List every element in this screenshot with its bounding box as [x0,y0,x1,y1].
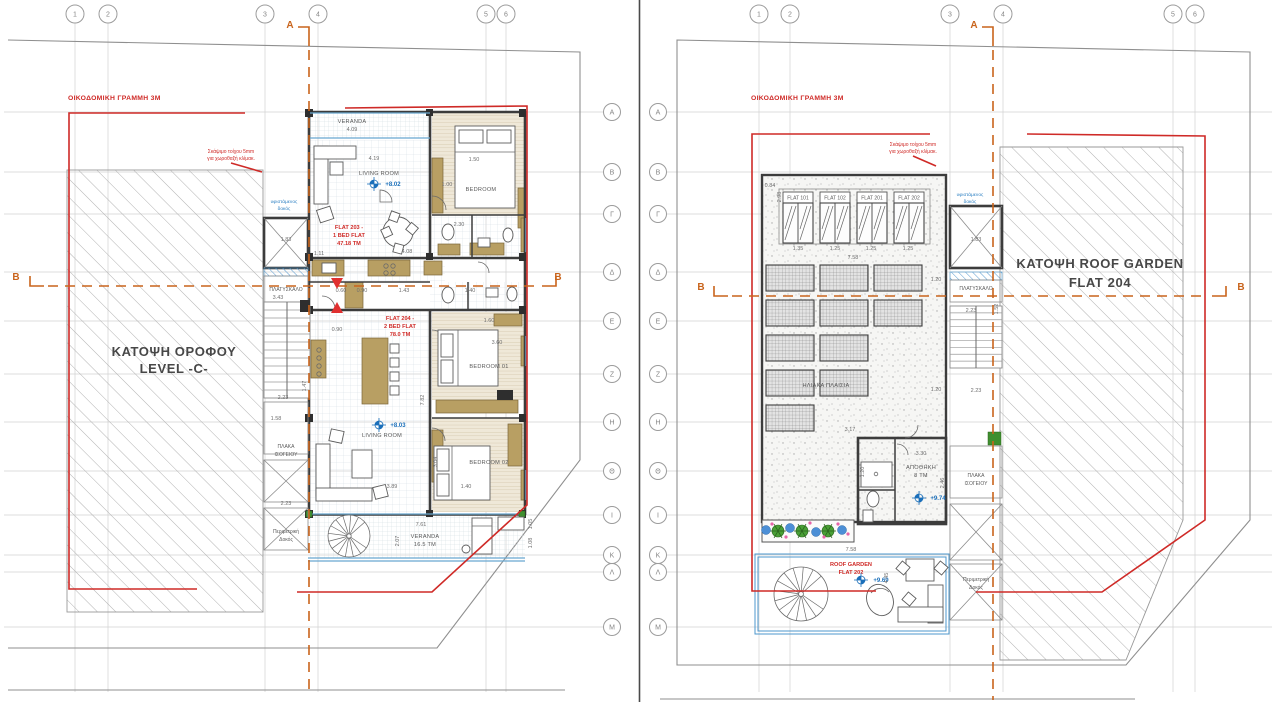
dimension-label: 0.60 [336,288,347,294]
dimension-label: 0.90 [357,288,368,294]
dimension-label: 1.83 [971,237,982,243]
flat-label: FLAT 204 - [386,316,414,322]
neighbour-building-hatch [67,170,263,612]
room-label: BEDROOM 02 [469,460,508,466]
grid-bubble-label: B [610,170,615,177]
dimension-label: 0.90 [332,327,343,333]
section-b-label-left-w: B [12,272,19,283]
grid-bubble-label: E [610,319,615,326]
dimension-label: 3.60 [492,340,503,346]
dimension-label: 1.25 [866,246,877,252]
dimension-label: 4.45 [884,573,890,584]
right-plan-subtitle: FLAT 204 [1069,275,1132,290]
beam-note: υφιστάμενος [271,198,298,205]
grid-bubble-label: Z [656,372,661,379]
solar-panel [874,265,922,291]
dimension-label: 3.30 [916,451,927,457]
core-label: ΠΛΑΚΑ [968,473,986,479]
dimension-label: 7.82 [420,395,426,406]
flat-label: ROOF GARDEN [830,562,872,568]
grid-bubble-label: Θ [609,469,615,476]
dimension-label: 1.00 [442,182,453,188]
roof-slab: FLAT 101FLAT 102FLAT 201FLAT 202 [762,175,946,524]
solar-panel [766,265,814,291]
level-label: +8.02 [385,182,401,188]
grid-bubble-label: H [609,420,614,427]
dimension-label: 3.89 [387,484,398,490]
grid-bubble-label: Λ [656,570,661,577]
skylight-label: FLAT 102 [824,196,846,202]
grid-bubble-label: M [655,625,661,632]
flat-label: 78.0 ΤΜ [390,332,411,338]
grid-bubble-label: 4 [1001,12,1005,19]
dimension-label: 2.23 [281,501,292,507]
grid-bubble-label: Δ [610,270,615,277]
grid-bubble-label: I [657,513,659,520]
solar-panel [766,405,814,431]
dimension-label: 0.84 [765,183,776,189]
room-label: 8 ΤΜ [914,473,928,479]
solar-panel [766,335,814,361]
grid-bubble-label: K [610,553,615,560]
dimension-label: 2.23 [966,308,977,314]
dimension-label: 1.25 [830,246,841,252]
room-label: ΑΠΟΘΗΚΗ [906,465,936,471]
flat-label: FLAT 203 - [335,225,363,231]
solar-panel [820,265,868,291]
dimension-label: 1.20 [860,467,866,478]
beam-note: δοκός [278,205,291,212]
dimension-label: 1.58 [271,416,282,422]
dimension-label: 2.07 [395,536,401,547]
grid-bubble-label: 4 [316,12,320,19]
room-label: BEDROOM 01 [469,364,508,370]
dimension-label: 7.58 [848,255,859,261]
grid-bubble-label: 6 [504,12,508,19]
spiral-stair [328,515,370,557]
excavation-note-right-1: Σκάψιμο τοίχου 5mm [890,141,936,148]
grid-bubble-label: A [610,110,615,117]
grid-bubble-label: M [609,625,615,632]
dimension-label: 1.83 [281,237,292,243]
section-arrow-down [331,302,343,313]
right-plan-roof-garden: FLAT 101FLAT 102FLAT 201FLAT 202 [660,27,1250,700]
solar-panel [820,335,868,361]
core-label: ΙΣΟΓΕΙΟΥ [965,481,989,487]
flat-label: 2 BED FLAT [384,324,416,330]
dimension-label: 1.35 [793,246,804,252]
dimension-label: 2.23 [971,388,982,394]
section-b-label-left-e: B [554,272,561,283]
grid-bubble-label: 1 [757,12,761,19]
right-plan-title: ΚΑΤΟΨΗ ROOF GARDEN [1016,256,1183,271]
neighbour-building-hatch [1000,147,1183,660]
level-label: +8.03 [390,423,406,429]
architectural-drawing-sheet: FLAT 101FLAT 102FLAT 201FLAT 202 [0,0,1280,702]
room-label: LIVING ROOM [359,171,399,177]
grid-bubble-label: I [611,513,613,520]
left-plan-title: ΚΑΤΟΨΗ ΟΡΟΦΟΥ [112,344,237,359]
dimension-label: 1.40 [465,288,476,294]
dimension-label: 3.17 [845,427,856,433]
grid-bubble-label: A [656,110,661,117]
core-label: ΠΛΑΤΥΣΚΑΛΟ [269,287,302,293]
dimension-label: 2.23 [278,395,289,401]
grid-bubble-label: 3 [948,12,952,19]
building-line-label-left: ΟΙΚΟΔΟΜΙΚΗ ΓΡΑΜΜΗ 3Μ [68,95,161,102]
flat-label: FLAT 202 [839,570,864,576]
room-label: VERANDA [411,534,440,540]
grid-bubble-label: 1 [73,12,77,19]
dimension-label: 1.50 [469,157,480,163]
flat-label: 1 BED FLAT [333,233,365,239]
skylight-label: FLAT 201 [861,196,883,202]
grid-bubble-label: H [655,420,660,427]
grid-bubble-label: Θ [655,469,661,476]
left-plan-level-c [8,27,580,696]
floor-plan-canvas: FLAT 101FLAT 102FLAT 201FLAT 202 [0,0,1280,702]
grid-bubble-label: 2 [788,12,792,19]
section-b-label-right-w: B [697,282,704,293]
grid-bubble-label: 5 [1171,12,1175,19]
dimension-label: 1.05 [528,519,534,530]
skylight-label: FLAT 101 [787,196,809,202]
dimension-label: 2.98 [777,192,783,203]
excavation-note-left-1: Σκάψιμο τοίχου 5mm [208,148,254,155]
dimension-label: 1.43 [399,288,410,294]
building-line-label-right: ΟΙΚΟΔΟΜΙΚΗ ΓΡΑΜΜΗ 3Μ [751,95,844,102]
roof-planter [762,520,855,542]
grid-bubble-label: K [656,553,661,560]
excavation-note-right-2: για χωροθαξή κλίμακ. [889,148,937,155]
grid-bubble-label: 3 [263,12,267,19]
core-label: Δοκός [969,584,983,591]
room-label: BEDROOM [466,187,497,193]
core-label: ΠΛΑΚΑ [278,444,296,450]
grid-bubble-label: 6 [1193,12,1197,19]
dimension-label: 1.52 [994,304,1000,315]
grid-bubble-label: 2 [106,12,110,19]
dimension-label: 1.25 [903,246,914,252]
grid-bubble-label: 5 [484,12,488,19]
excavation-note-left-2: για χωροθαξή κλίμακ. [207,155,255,162]
dimension-label: 1.11 [314,251,324,257]
dimension-label: 7.58 [846,547,857,553]
dimension-label: 4.09 [347,127,358,133]
flat-label: 47.18 ΤΜ [337,241,361,247]
room-label: 16.5 ΤΜ [414,542,436,548]
dimension-label: 4.08 [402,249,413,255]
core [950,206,1002,620]
section-a-label-left: A [286,20,293,31]
section-a-label-right: A [970,20,977,31]
room-label: ΗΛΙΑΚΑ ΠΛΑΙΣΙΑ [802,383,849,389]
dimension-label: 4.19 [369,156,380,162]
dimension-label: 3.04 [433,457,439,468]
grid-bubble-label: E [656,319,661,326]
core-label: ΠΛΑΤΥΣΚΑΛΟ [959,286,992,292]
dimension-label: 1.08 [528,538,534,549]
dimension-label: 3.43 [273,295,284,301]
grid-bubble-label: Γ [610,212,614,219]
grid-bubble-label: Γ [656,212,660,219]
room-label: VERANDA [338,119,367,125]
level-label: +9.74 [930,496,946,502]
solar-panel [820,300,868,326]
core-label: Περιμετρική [273,528,299,535]
skylight-label: FLAT 202 [898,196,920,202]
core-label: Περιμετρική [963,576,989,583]
grid-bubble-label: Δ [656,270,661,277]
dimension-label: 2.46 [940,478,946,489]
grid-bubble-label: Λ [610,570,615,577]
core-label: ΙΣΟΓΕΙΟΥ [275,452,299,458]
dimension-label: 1.60 [484,318,495,324]
beam-note: δοκός [964,198,977,205]
dimension-label: 1.20 [931,277,942,283]
section-b-label-right-e: B [1237,282,1244,293]
room-label: LIVING ROOM [362,433,402,439]
beam-note: υφιστάμενος [957,191,984,198]
core-label: Δοκός [279,536,293,543]
dimension-label: 2.30 [454,222,465,228]
dimension-label: 1.40 [461,484,472,490]
grid-bubble-label: Z [610,372,615,379]
left-plan-subtitle: LEVEL -C- [140,361,209,376]
grid-bubble-label: B [656,170,661,177]
dimension-label: 1.20 [931,387,942,393]
solar-panel [766,300,814,326]
solar-panel [874,300,922,326]
dimension-label: 7.61 [416,522,427,528]
dimension-label: 1.47 [302,381,308,392]
